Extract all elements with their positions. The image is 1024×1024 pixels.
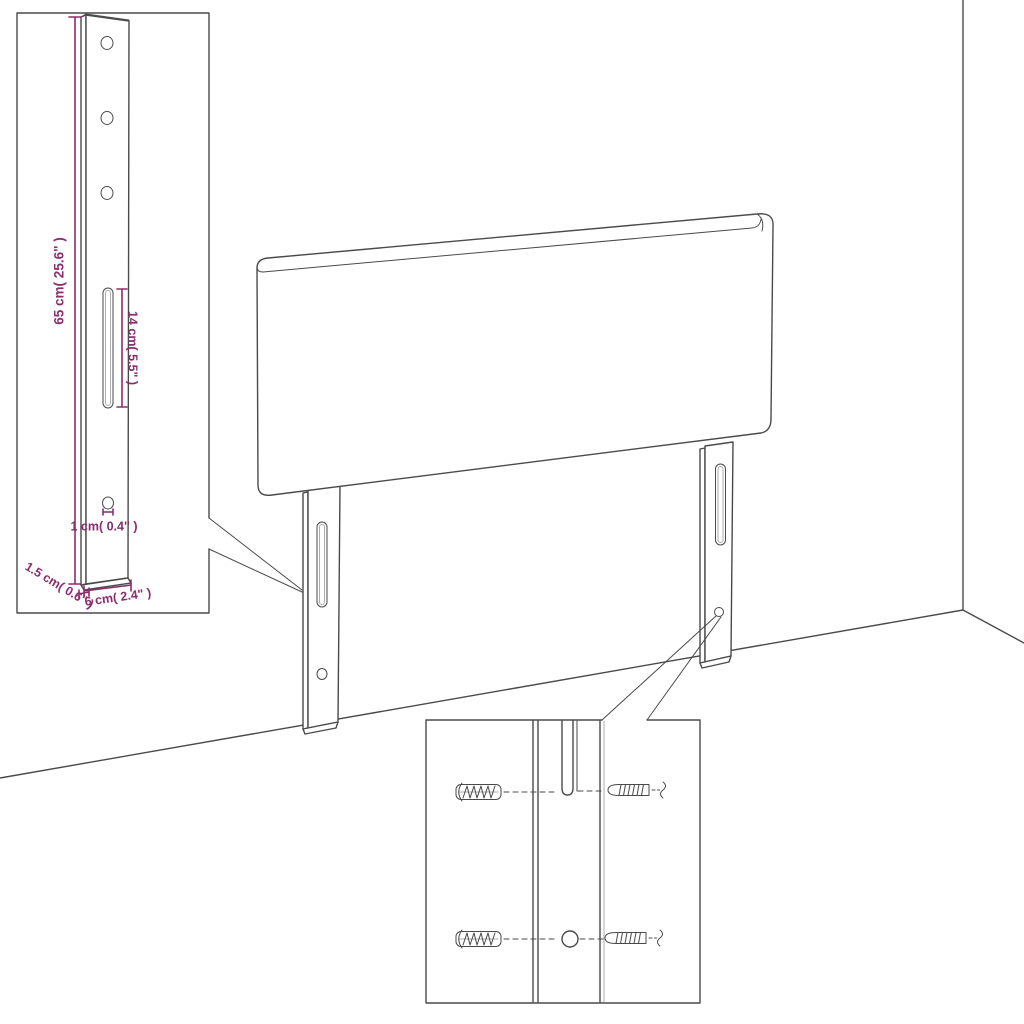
hardware-inset-border [426, 720, 700, 1003]
screw-hole [101, 187, 113, 200]
callout-left [209, 518, 302, 592]
headboard-right-leg [700, 442, 733, 668]
screw-icon [608, 782, 666, 798]
left-leg-side-face [303, 492, 308, 729]
screw-icon [605, 930, 663, 946]
assembly-diagram: 65 cm( 25.6" ) 14 cm( 5.5" ) 1 cm( 0.4" … [0, 0, 1024, 1024]
inset-leg-strip-edges [533, 721, 600, 1002]
diagram-canvas: 65 cm( 25.6" ) 14 cm( 5.5" ) 1 cm( 0.4" … [0, 0, 1024, 1024]
right-leg-side-face [700, 448, 705, 663]
headboard-left-leg [303, 486, 340, 734]
inset-slot [562, 721, 573, 795]
panel-outline [257, 214, 773, 496]
dimension-label-height: 65 cm( 25.6" ) [52, 237, 67, 324]
dimension-label-slot-length: 14 cm( 5.5" ) [126, 311, 140, 385]
alignment-dashed-lines [504, 791, 605, 939]
dimension-label-hole-diameter: 1 cm( 0.4" ) [70, 519, 137, 533]
right-leg-hole [715, 608, 724, 617]
screw-hole [101, 112, 113, 125]
right-leg-slot [716, 464, 726, 545]
wall-plug-icon [456, 783, 501, 801]
wall-plug-icon [456, 930, 501, 948]
callout-left-lines [209, 518, 302, 592]
inset-hole [562, 931, 578, 947]
bracket-detail-inset: 65 cm( 25.6" ) 14 cm( 5.5" ) 1 cm( 0.4" … [17, 13, 209, 613]
floor-line [0, 610, 1024, 778]
dimension-line-height [69, 17, 81, 584]
hardware-detail-inset [426, 720, 700, 1003]
screw-hole [101, 37, 113, 50]
headboard-panel [257, 214, 773, 496]
bracket-side-face [81, 15, 86, 585]
bracket-slot [103, 288, 113, 408]
left-leg-slot [317, 522, 327, 607]
left-leg-hole [317, 669, 327, 680]
bracket-bottom-hole [103, 497, 114, 509]
